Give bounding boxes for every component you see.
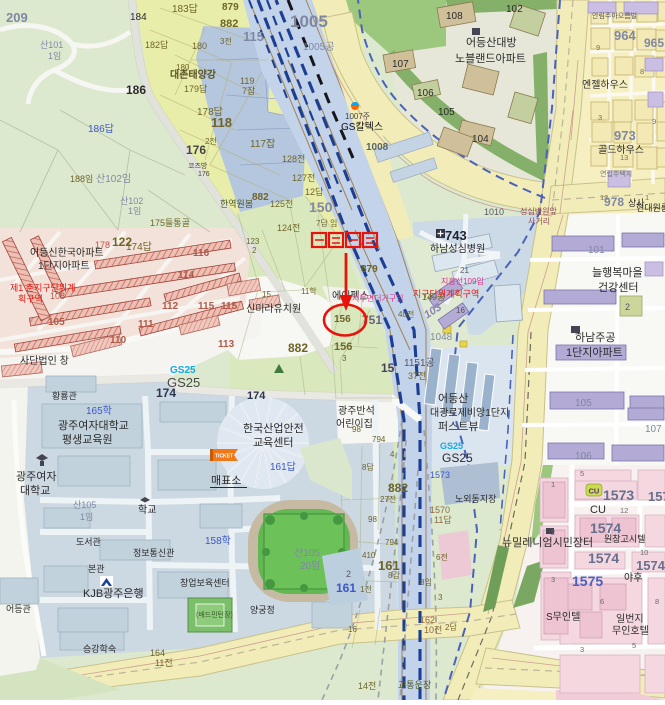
svg-text:105: 105 (438, 107, 455, 118)
svg-text:매표소: 매표소 (211, 474, 241, 487)
svg-text:40전: 40전 (398, 309, 414, 319)
svg-text:113: 113 (218, 339, 235, 350)
svg-text:1단지아파트: 1단지아파트 (566, 346, 623, 359)
svg-text:119: 119 (240, 76, 254, 86)
svg-text:20임: 20임 (300, 559, 320, 572)
svg-text:156: 156 (334, 341, 352, 353)
svg-text:1573: 1573 (603, 487, 634, 503)
svg-text:4: 4 (390, 450, 395, 459)
svg-text:176: 176 (186, 143, 206, 157)
svg-text:973: 973 (614, 128, 636, 143)
svg-text:209: 209 (6, 10, 28, 25)
svg-text:16: 16 (456, 306, 465, 315)
svg-text:3: 3 (580, 645, 584, 654)
svg-text:8: 8 (640, 67, 644, 76)
svg-text:110: 110 (110, 335, 127, 346)
svg-text:1임: 1임 (128, 205, 141, 216)
svg-text:11전: 11전 (155, 658, 173, 668)
svg-text:노블랜드아파트: 노블랜드아파트 (455, 52, 526, 65)
svg-text:123: 123 (246, 237, 260, 246)
svg-text:8임: 8임 (420, 578, 432, 587)
svg-text:사거리: 사거리 (528, 217, 550, 226)
svg-text:108: 108 (50, 291, 65, 301)
svg-text:원창고시텔: 원창고시텔 (604, 533, 645, 544)
svg-text:엔젤하우스: 엔젤하우스 (582, 78, 628, 91)
svg-text:118: 118 (211, 115, 232, 130)
svg-text:117잡: 117잡 (250, 138, 275, 150)
svg-text:8답: 8답 (362, 462, 374, 472)
svg-text:116: 116 (193, 248, 210, 259)
svg-text:161: 161 (336, 581, 356, 595)
svg-text:퍼스트뷰: 퍼스트뷰 (438, 420, 478, 433)
svg-text:CU: CU (589, 487, 600, 496)
svg-text:149공: 149공 (422, 292, 445, 302)
svg-text:16: 16 (348, 625, 357, 634)
svg-text:186: 186 (126, 83, 146, 97)
svg-text:6전: 6전 (436, 552, 448, 562)
svg-text:현대원룸: 현대원룸 (636, 203, 665, 213)
svg-text:3: 3 (598, 113, 602, 122)
svg-text:어등관: 어등관 (6, 604, 31, 614)
svg-text:어등산대방: 어등산대방 (466, 36, 517, 49)
svg-text:10전: 10전 (424, 625, 442, 635)
svg-text:106: 106 (575, 451, 592, 462)
svg-text:획구역: 획구역 (18, 293, 43, 304)
svg-text:183답: 183답 (172, 3, 198, 15)
svg-text:12답: 12답 (305, 186, 323, 197)
svg-text:9: 9 (652, 117, 656, 126)
svg-text:성심병원앞: 성심병원앞 (520, 206, 557, 216)
svg-text:3전: 3전 (220, 36, 232, 46)
svg-text:175들통골: 175들통골 (150, 218, 190, 228)
svg-text:964: 964 (614, 28, 636, 43)
svg-text:안림주아으름빌: 안림주아으름빌 (592, 11, 637, 20)
svg-text:9: 9 (596, 43, 600, 52)
svg-text:21: 21 (460, 266, 469, 275)
svg-text:1: 1 (551, 480, 555, 489)
svg-text:965: 965 (644, 36, 664, 50)
svg-text:11답: 11답 (434, 514, 452, 525)
svg-text:101: 101 (588, 245, 605, 256)
svg-text:1151공: 1151공 (404, 357, 435, 369)
svg-text:150: 150 (309, 199, 333, 215)
svg-text:교통운장: 교통운장 (398, 680, 431, 690)
svg-text:115: 115 (221, 301, 238, 312)
svg-text:179답: 179답 (184, 83, 207, 94)
svg-text:지흥선109임: 지흥선109임 (441, 276, 484, 286)
svg-text:광주반석: 광주반석 (338, 405, 375, 417)
svg-text:107: 107 (645, 424, 662, 435)
svg-text:1임: 1임 (80, 511, 93, 522)
svg-text:105: 105 (575, 398, 592, 409)
svg-text:본관: 본관 (88, 564, 105, 574)
svg-text:114: 114 (178, 270, 195, 281)
svg-text:104: 104 (472, 134, 489, 145)
svg-text:188임: 188임 (70, 173, 93, 184)
svg-text:15: 15 (381, 361, 395, 375)
svg-text:112: 112 (162, 301, 179, 312)
svg-text:양궁정: 양궁정 (250, 605, 275, 615)
svg-text:교육센터: 교육센터 (253, 436, 293, 449)
svg-text:182답: 182답 (145, 39, 168, 50)
svg-text:8: 8 (655, 597, 659, 606)
svg-text:CU: CU (590, 504, 606, 516)
svg-text:GS25: GS25 (440, 441, 463, 451)
svg-text:2답: 2답 (445, 622, 457, 632)
svg-text:뉴밀레니엄시민장터: 뉴밀레니엄시민장터 (502, 536, 593, 549)
svg-text:410: 410 (362, 551, 376, 560)
svg-text:879: 879 (361, 264, 378, 275)
svg-text:1단지아파트: 1단지아파트 (38, 260, 90, 272)
svg-text:1575: 1575 (572, 573, 603, 589)
svg-text:야후: 야후 (624, 572, 642, 584)
svg-text:98: 98 (352, 425, 361, 434)
svg-text:1005공: 1005공 (303, 41, 334, 53)
svg-text:15: 15 (262, 290, 271, 299)
svg-text:102: 102 (506, 4, 523, 15)
svg-text:125전: 125전 (270, 199, 293, 209)
svg-text:7답 임: 7답 임 (316, 218, 337, 228)
svg-text:2전: 2전 (205, 136, 217, 146)
svg-text:사단법인 창: 사단법인 창 (20, 355, 69, 367)
svg-text:대광로제비앙1단지: 대광로제비앙1단지 (430, 407, 509, 419)
svg-text:노외동지장: 노외동지장 (455, 493, 496, 504)
svg-text:14전: 14전 (358, 681, 376, 691)
svg-text:(배드민턴장): (배드민턴장) (196, 610, 233, 619)
svg-text:무인호텔: 무인호텔 (612, 625, 649, 637)
svg-text:10: 10 (640, 548, 648, 557)
svg-text:1임: 1임 (48, 50, 61, 61)
svg-text:GS칼텍스: GS칼텍스 (341, 120, 383, 133)
svg-text:186답: 186답 (88, 123, 114, 135)
svg-text:2: 2 (625, 302, 630, 312)
svg-text:882: 882 (288, 341, 308, 355)
svg-text:882: 882 (252, 192, 269, 203)
svg-text:882: 882 (388, 481, 408, 495)
svg-text:산102: 산102 (120, 196, 143, 206)
svg-text:연립주택지: 연립주택지 (600, 169, 632, 178)
svg-text:161답: 161답 (270, 461, 296, 473)
svg-text:학교: 학교 (138, 504, 156, 516)
svg-text:879: 879 (222, 2, 239, 13)
svg-text:115: 115 (243, 29, 264, 44)
svg-text:한국산업안전: 한국산업안전 (243, 422, 304, 435)
svg-text:지루면더가구임: 지루면더가구임 (352, 293, 404, 303)
svg-text:골드하우스: 골드하우스 (598, 143, 644, 156)
svg-text:106: 106 (417, 88, 434, 99)
svg-text:115: 115 (198, 301, 215, 312)
svg-text:창업보육센터: 창업보육센터 (180, 578, 230, 588)
svg-text:5: 5 (632, 641, 636, 650)
svg-text:5: 5 (580, 469, 584, 478)
svg-text:165학: 165학 (86, 405, 112, 417)
svg-text:174: 174 (156, 386, 176, 400)
svg-text:158학: 158학 (205, 535, 231, 547)
svg-text:2: 2 (551, 528, 555, 537)
svg-text:대촌태양강: 대촌태양강 (170, 68, 217, 81)
svg-text:승강학숙: 승강학숙 (83, 644, 116, 654)
svg-text:신미라유치원: 신미라유치원 (246, 303, 301, 315)
svg-text:1전: 1전 (360, 584, 372, 594)
svg-text:광주여자대학교: 광주여자대학교 (58, 419, 129, 432)
svg-text:105: 105 (48, 317, 65, 328)
svg-text:2: 2 (252, 246, 257, 255)
svg-text:1048: 1048 (430, 332, 453, 343)
svg-text:산102임: 산102임 (96, 172, 131, 185)
svg-text:8갑: 8갑 (388, 570, 400, 580)
svg-text:3: 3 (551, 575, 555, 584)
svg-text:3: 3 (342, 354, 347, 363)
svg-text:늘행복마을: 늘행복마을 (592, 266, 643, 279)
svg-text:1573: 1573 (430, 470, 450, 480)
svg-text:코즈방: 코즈방 (188, 161, 208, 170)
svg-text:1570: 1570 (430, 505, 450, 515)
svg-text:하남주공: 하남주공 (575, 330, 615, 344)
svg-text:978: 978 (604, 195, 624, 209)
svg-text:일번지: 일번지 (616, 613, 644, 625)
svg-text:2: 2 (346, 569, 351, 579)
svg-text:882: 882 (220, 18, 238, 30)
svg-text:108: 108 (446, 11, 463, 22)
svg-text:794: 794 (372, 435, 386, 444)
svg-text:황룡관: 황룡관 (52, 391, 77, 401)
svg-text:3: 3 (438, 593, 443, 602)
svg-text:127전: 127전 (292, 173, 315, 183)
svg-text:대학교: 대학교 (20, 484, 50, 497)
svg-text:176: 176 (198, 171, 210, 178)
svg-text:37전: 37전 (408, 371, 426, 381)
svg-text:KJB광주은행: KJB광주은행 (83, 587, 144, 600)
svg-text:산105: 산105 (73, 500, 96, 510)
svg-text:184: 184 (130, 12, 147, 23)
svg-text:하남성심병원: 하남성심병원 (430, 242, 485, 255)
svg-text:157: 157 (648, 489, 665, 504)
svg-text:1008: 1008 (366, 142, 389, 153)
svg-text:164: 164 (150, 648, 165, 658)
svg-text:1574: 1574 (636, 558, 665, 573)
svg-text:122: 122 (112, 235, 132, 249)
svg-text:743: 743 (445, 228, 467, 243)
svg-text:도서관: 도서관 (76, 537, 101, 547)
svg-text:162: 162 (420, 615, 435, 625)
svg-text:111: 111 (138, 319, 154, 330)
svg-text:1010: 1010 (484, 207, 504, 217)
svg-text:156: 156 (334, 314, 351, 325)
svg-text:1005: 1005 (290, 12, 328, 31)
svg-text:평생교육원: 평생교육원 (62, 433, 113, 446)
svg-text:124전: 124전 (277, 223, 300, 233)
svg-text:어등신한국아파트: 어등신한국아파트 (30, 247, 104, 259)
svg-text:107: 107 (392, 59, 409, 70)
svg-text:1: 1 (645, 193, 649, 202)
svg-text:174: 174 (247, 390, 266, 402)
svg-text:27전: 27전 (380, 494, 396, 504)
svg-text:1007주: 1007주 (345, 112, 370, 121)
svg-text:S무인텔: S무인텔 (546, 611, 580, 623)
svg-text:정보통신관: 정보통신관 (133, 548, 174, 558)
svg-text:98: 98 (368, 515, 377, 524)
svg-text:제1 춘지구단위계: 제1 춘지구단위계 (10, 282, 75, 293)
svg-text:광주여자: 광주여자 (16, 470, 56, 483)
svg-text:6: 6 (600, 597, 604, 606)
svg-text:7잡: 7잡 (242, 85, 255, 96)
svg-text:어등산: 어등산 (438, 392, 468, 405)
svg-text:건강센터: 건강센터 (598, 281, 638, 294)
svg-text:180: 180 (192, 41, 207, 51)
svg-text:794: 794 (385, 538, 399, 547)
svg-text:1574: 1574 (588, 550, 619, 566)
svg-text:산101: 산101 (40, 40, 63, 50)
svg-text:128전: 128전 (282, 154, 305, 164)
svg-text:GS25: GS25 (442, 451, 473, 465)
svg-text:TICKET: TICKET (215, 454, 233, 460)
svg-text:12: 12 (620, 506, 628, 515)
svg-text:한역원봄: 한역원봄 (220, 199, 253, 209)
svg-text:산105: 산105 (294, 547, 320, 559)
svg-text:11학: 11학 (301, 286, 317, 296)
